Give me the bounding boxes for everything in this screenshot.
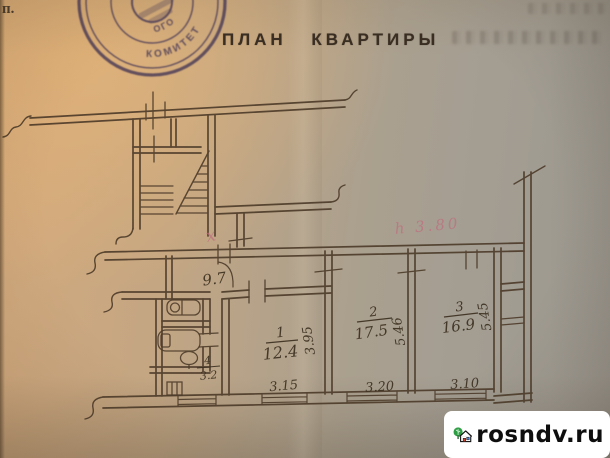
room-3-number: 3 (455, 300, 465, 316)
room-1-depth-label: 3.95 (300, 325, 319, 356)
room-1-area-label: 12.4 (262, 341, 299, 364)
pink-check-mark: х (204, 225, 218, 247)
watermark-link[interactable]: rosndv.ru (444, 411, 610, 458)
wall-break-mark (116, 228, 133, 244)
watermark-text: rosndv.ru (476, 422, 604, 448)
round-stamp: КОМИТЕТ ОГО (53, 0, 250, 101)
pink-height-note: h 3.80 (394, 214, 461, 238)
entrance-door-jambs (218, 244, 230, 264)
plumbing-fixtures (158, 300, 200, 395)
scanned-apartment-plan-photo: п. ПЛАН КВАРТИРЫ КОМИТЕТ ОГО (0, 0, 610, 458)
room-2-width-label: 3.20 (365, 379, 395, 396)
wall-break-mark (514, 166, 545, 184)
stair-steps (141, 151, 209, 214)
room-2-area-label: 17.5 (354, 321, 390, 343)
room-3-depth-label: 5.45 (476, 301, 496, 332)
bathroom-area-label: 3.2 (199, 368, 218, 383)
bathtub-icon (158, 330, 200, 351)
vent-shaft-icon (167, 382, 182, 395)
corridor-area-label: 9.7 (201, 268, 228, 289)
wall-break-mark (3, 116, 31, 137)
wall-break-mark (104, 292, 122, 312)
svg-text:КОМИТЕТ: КОМИТЕТ (141, 21, 208, 69)
room-1-number: 1 (275, 325, 286, 342)
wall-break-mark (87, 252, 105, 274)
handwritten-labels: 9.7 1 12.4 3.15 3.95 2 17.5 3.20 5.46 3 … (197, 268, 495, 396)
room-1-width-label: 3.15 (269, 378, 299, 395)
room-3-area-label: 16.9 (441, 315, 477, 337)
stamp-ring-text: КОМИТЕТ (141, 21, 208, 69)
floor-plan-drawing: КОМИТЕТ ОГО (0, 0, 610, 458)
wall-break-mark (345, 90, 357, 100)
bathroom-number: 4 (202, 354, 211, 368)
toilet-icon (167, 300, 200, 315)
plan-walls (3, 90, 545, 419)
pink-annotations: х h 3.80 (204, 214, 461, 247)
wall-break-mark (331, 185, 345, 202)
room-3-width-label: 3.10 (450, 376, 480, 393)
room-2-depth-label: 5.46 (390, 316, 409, 347)
room1-door-jambs (249, 280, 265, 303)
wall-break-mark (85, 397, 103, 419)
room-2-number: 2 (367, 305, 378, 321)
rosndv-logo-icon (452, 415, 472, 455)
bathroom-door-jambs (199, 333, 218, 347)
